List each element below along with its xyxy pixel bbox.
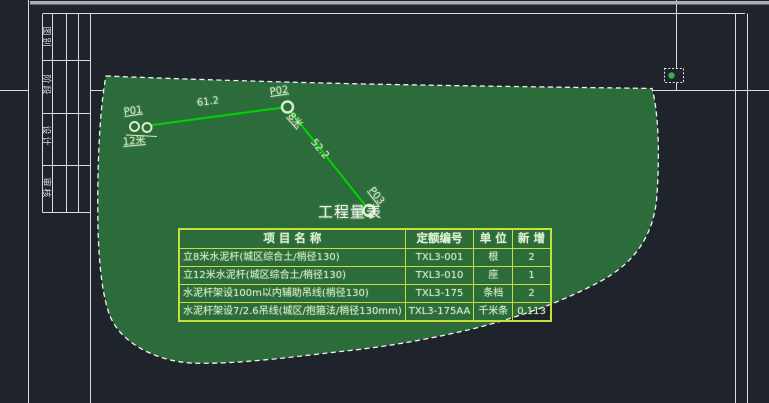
sheet-top-edge [30,1,769,5]
unit: 条档 [474,285,513,303]
title-block-label-1: 图别 [41,24,54,52]
table-row: 立8米水泥杆(城区综合土/梢径130) TXL3-001 根 2 [179,249,551,267]
selected-point-grip[interactable] [665,69,684,83]
quota-code: TXL3-175 [405,285,474,303]
title-block-label-3: 设计 [41,123,54,151]
new-qty: 1 [513,267,551,285]
cad-canvas[interactable]: 图别 阶段 设计 审核 P01 12米 61.2 P02 8米 52.2 P03… [0,0,769,403]
quantity-table-title: 工程量表 [318,201,382,222]
quota-code: TXL3-175AA [405,303,474,322]
table-row: 水泥杆架设100m以内辅助吊线(梢径130) TXL3-175 条档 2 [179,285,551,303]
unit: 根 [474,249,513,267]
table-row: 立12米水泥杆(城区综合土/梢径130) TXL3-010 座 1 [179,267,551,285]
new-qty: 2 [513,249,551,267]
quantity-table[interactable]: 项 目 名 称 定额编号 单 位 新 增 立8米水泥杆(城区综合土/梢径130)… [178,228,552,322]
item-name: 立8米水泥杆(城区综合土/梢径130) [179,249,405,267]
col-header-quota-code: 定额编号 [405,229,474,249]
quantity-table-header-row: 项 目 名 称 定额编号 单 位 新 增 [179,229,551,249]
unit: 千米条 [474,303,513,322]
quota-code: TXL3-001 [405,249,474,267]
col-header-unit: 单 位 [474,229,513,249]
pole-height-p01[interactable]: 12米 [123,136,147,148]
quota-code: TXL3-010 [405,267,474,285]
new-qty: 0.113 [513,303,551,322]
item-name: 水泥杆架设7/2.6吊线(城区/抱箍法/梢径130mm) [179,303,405,322]
title-block-label-2: 阶段 [41,72,54,100]
table-row: 水泥杆架设7/2.6吊线(城区/抱箍法/梢径130mm) TXL3-175AA … [179,303,551,322]
item-name: 立12米水泥杆(城区综合土/梢径130) [179,267,405,285]
col-header-item-name: 项 目 名 称 [179,229,405,249]
new-qty: 2 [513,285,551,303]
pole-symbol-p02[interactable] [282,102,293,113]
unit: 座 [474,267,513,285]
title-block-label-4: 审核 [41,175,54,203]
item-name: 水泥杆架设100m以内辅助吊线(梢径130) [179,285,405,303]
col-header-new-qty: 新 增 [513,229,551,249]
